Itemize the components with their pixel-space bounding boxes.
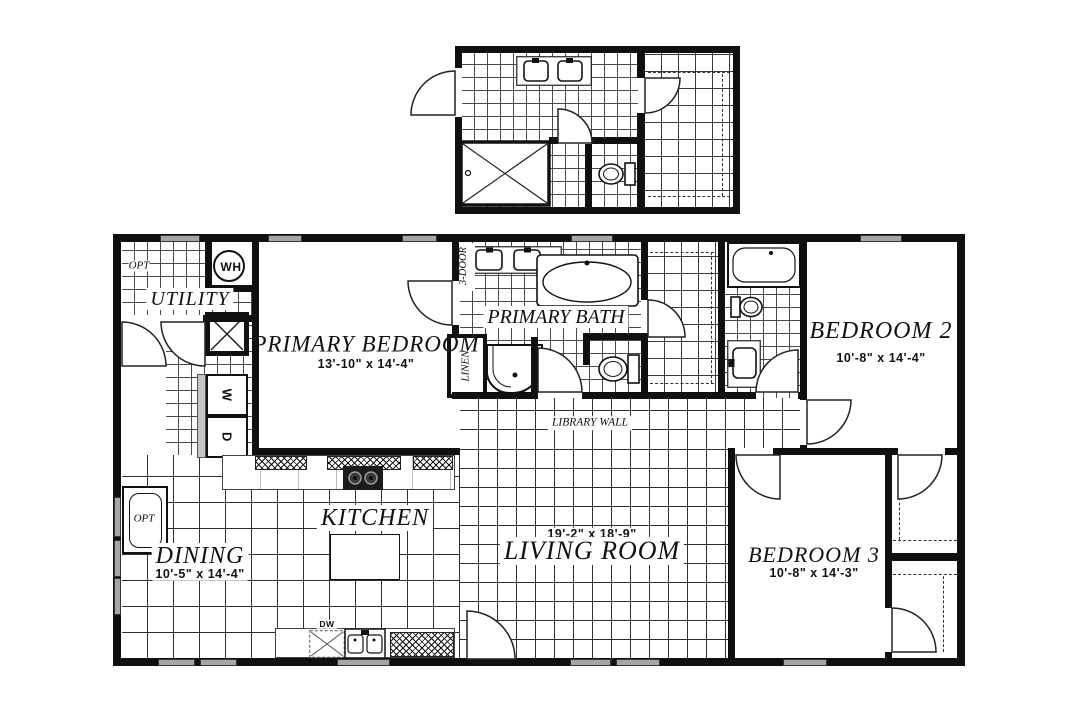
wall xyxy=(205,241,212,290)
door-arc xyxy=(467,611,515,659)
wall xyxy=(455,46,740,53)
door-arc xyxy=(408,281,452,325)
wall xyxy=(203,315,259,322)
window xyxy=(860,235,902,242)
primary-bedroom-label: PRIMARY BEDROOM xyxy=(252,333,479,356)
wall xyxy=(455,207,740,214)
wall xyxy=(455,46,462,68)
wall xyxy=(800,241,807,400)
door-arc xyxy=(892,608,936,652)
hall-bath-toilet xyxy=(729,292,765,322)
water-heater: WH xyxy=(213,250,245,282)
primary-bath-label: PRIMARY BATH xyxy=(483,306,628,328)
window xyxy=(200,659,237,666)
closet-rod-dash xyxy=(943,576,944,652)
door-arc xyxy=(122,322,166,366)
wall xyxy=(733,46,740,214)
window xyxy=(570,659,611,666)
kitchen-sink xyxy=(344,628,386,659)
library-wall xyxy=(452,392,538,399)
inset-closet-shelf-dash xyxy=(648,72,730,73)
linen-label: LINEN xyxy=(461,350,472,381)
primary-bath-toilet xyxy=(596,350,644,388)
window xyxy=(616,659,660,666)
wall xyxy=(885,561,892,608)
door-arc xyxy=(645,78,680,113)
wall xyxy=(531,337,538,392)
closet-shelf-dash xyxy=(650,383,714,384)
washer-label: W xyxy=(221,389,234,402)
wall xyxy=(728,448,735,658)
inset-shower xyxy=(459,140,551,207)
exterior-wall xyxy=(113,658,965,666)
wall xyxy=(885,455,892,553)
window xyxy=(114,578,121,615)
wall xyxy=(583,340,590,365)
inset-double-vanity xyxy=(516,56,592,86)
wall xyxy=(718,241,725,398)
utility-label: UTILITY xyxy=(146,288,233,310)
wall xyxy=(885,553,958,561)
library-wall xyxy=(582,392,756,399)
three-door-label: 3-DOOR xyxy=(459,247,470,285)
living-room-label: LIVING ROOM xyxy=(500,537,684,565)
wall xyxy=(798,392,807,399)
bedroom2-label: BEDROOM 2 xyxy=(810,319,953,343)
wall xyxy=(549,137,558,144)
inset-closet-rod-dash xyxy=(722,74,723,196)
laundry-counter xyxy=(197,374,206,458)
window xyxy=(571,235,613,242)
bedroom2-dims: 10'-8" x 14'-4" xyxy=(836,352,925,365)
exterior-wall xyxy=(957,234,965,666)
wall xyxy=(583,333,648,340)
door-arc xyxy=(538,348,582,392)
kitchen-backsplash-hatch xyxy=(413,456,453,470)
door-arc xyxy=(736,455,780,499)
dining-label: DINING xyxy=(152,543,249,569)
inset-closet-tile-floor xyxy=(645,53,733,207)
closet-rod-dash xyxy=(711,252,712,383)
window xyxy=(158,659,195,666)
library-wall-label: LIBRARY WALL xyxy=(548,416,632,430)
opt-lower-label: OPT xyxy=(134,514,155,525)
hall-bath-tub xyxy=(727,242,803,288)
wall xyxy=(585,144,592,207)
door-arc xyxy=(161,322,205,366)
inset-closet-shelf-dash xyxy=(648,196,730,197)
wall xyxy=(592,137,637,144)
wall xyxy=(637,113,645,207)
kitchen-island xyxy=(330,534,400,580)
door-arc xyxy=(558,109,592,143)
door-arc xyxy=(898,455,942,499)
opt-upper-label: OPT xyxy=(129,261,150,272)
door-arc xyxy=(756,350,798,392)
water-heater-label: WH xyxy=(221,261,242,273)
kitchen-backsplash-hatch xyxy=(255,456,307,470)
door-arc xyxy=(648,300,685,337)
closet-shelf-dash xyxy=(893,540,957,541)
washer: W xyxy=(206,374,248,416)
kitchen-stove xyxy=(343,466,383,490)
door-arc xyxy=(807,400,851,444)
closet-shelf-dash xyxy=(893,574,957,575)
bedroom3-label: BEDROOM 3 xyxy=(748,544,880,566)
window xyxy=(268,235,302,242)
window xyxy=(114,497,121,537)
primary-bedroom-dims: 13'-10" x 14'-4" xyxy=(318,358,415,371)
kitchen-label: KITCHEN xyxy=(317,505,433,531)
wall xyxy=(637,53,645,78)
kitchen-counter-hatch xyxy=(390,632,454,657)
window xyxy=(160,235,200,242)
closet-shelf-dash xyxy=(650,252,714,253)
wall xyxy=(455,117,462,214)
dishwasher-label: DW xyxy=(316,620,337,629)
wall xyxy=(773,448,898,455)
wall xyxy=(641,337,648,392)
door-arc xyxy=(411,71,455,115)
dryer: D xyxy=(206,416,248,458)
primary-bath-tub xyxy=(536,254,640,308)
inset-toilet xyxy=(596,158,638,190)
dryer-label: D xyxy=(221,432,234,442)
window xyxy=(783,659,827,666)
window xyxy=(402,235,437,242)
dishwasher-box xyxy=(309,630,345,658)
wall xyxy=(641,241,648,300)
wall xyxy=(252,448,460,455)
window xyxy=(114,540,121,577)
exterior-wall xyxy=(113,234,965,242)
window xyxy=(337,659,390,666)
bedroom3-dims: 10'-8" x 14'-3" xyxy=(769,567,858,580)
dining-dims: 10'-5" x 14'-4" xyxy=(152,568,247,581)
floor-plan-canvas: WH W D xyxy=(0,0,1080,720)
